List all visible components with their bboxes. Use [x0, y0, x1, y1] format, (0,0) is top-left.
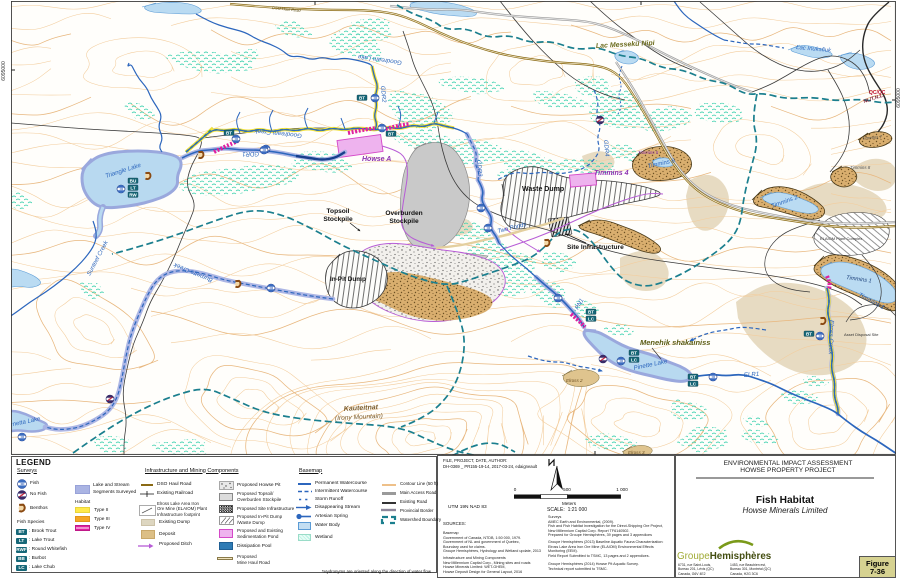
- svg-text:Asset Disposal Site: Asset Disposal Site: [844, 332, 879, 337]
- svg-text:BT: BT: [806, 331, 812, 336]
- svg-text:ELR1: ELR1: [744, 371, 760, 379]
- svg-text:BT: BT: [690, 374, 696, 379]
- svg-text:GDR1: GDR1: [242, 150, 259, 156]
- svg-text:Howse A: Howse A: [362, 156, 391, 163]
- svg-text:LC: LC: [690, 381, 697, 386]
- svg-text:Site Infrastructure: Site Infrastructure: [567, 244, 624, 251]
- svg-text:Topsoil: Topsoil: [327, 208, 350, 215]
- svg-text:Stockpile: Stockpile: [389, 218, 419, 225]
- svg-text:Elross Creek: Elross Creek: [827, 320, 834, 356]
- svg-text:Stockpile: Stockpile: [323, 216, 353, 223]
- svg-text:ELAIOM Plant Complex: ELAIOM Plant Complex: [820, 236, 862, 241]
- svg-text:Overburden: Overburden: [385, 210, 422, 217]
- svg-text:Timmins 5: Timmins 5: [638, 150, 659, 155]
- svg-text:Timmins 4: Timmins 4: [594, 170, 629, 177]
- svg-text:LC: LC: [631, 357, 638, 362]
- svg-text:In-Pit Dump: In-Pit Dump: [330, 276, 366, 283]
- svg-text:LT: LT: [130, 185, 135, 190]
- svg-text:Menehik shakainiss: Menehik shakainiss: [640, 338, 710, 347]
- svg-text:BT: BT: [226, 130, 232, 135]
- svg-text:BT: BT: [631, 350, 637, 355]
- svg-text:BT: BT: [588, 309, 594, 314]
- svg-text:BT: BT: [388, 131, 394, 136]
- svg-text:GroupeHemisphères: GroupeHemisphères: [677, 551, 772, 561]
- svg-text:Timmins 8: Timmins 8: [850, 165, 871, 170]
- svg-text:RW: RW: [129, 192, 137, 197]
- svg-text:Elross 2: Elross 2: [566, 378, 583, 383]
- svg-text:LC: LC: [588, 316, 595, 321]
- svg-text:BT: BT: [359, 95, 365, 100]
- svg-text:BU: BU: [130, 178, 137, 183]
- svg-text:Waste Dump: Waste Dump: [522, 186, 564, 193]
